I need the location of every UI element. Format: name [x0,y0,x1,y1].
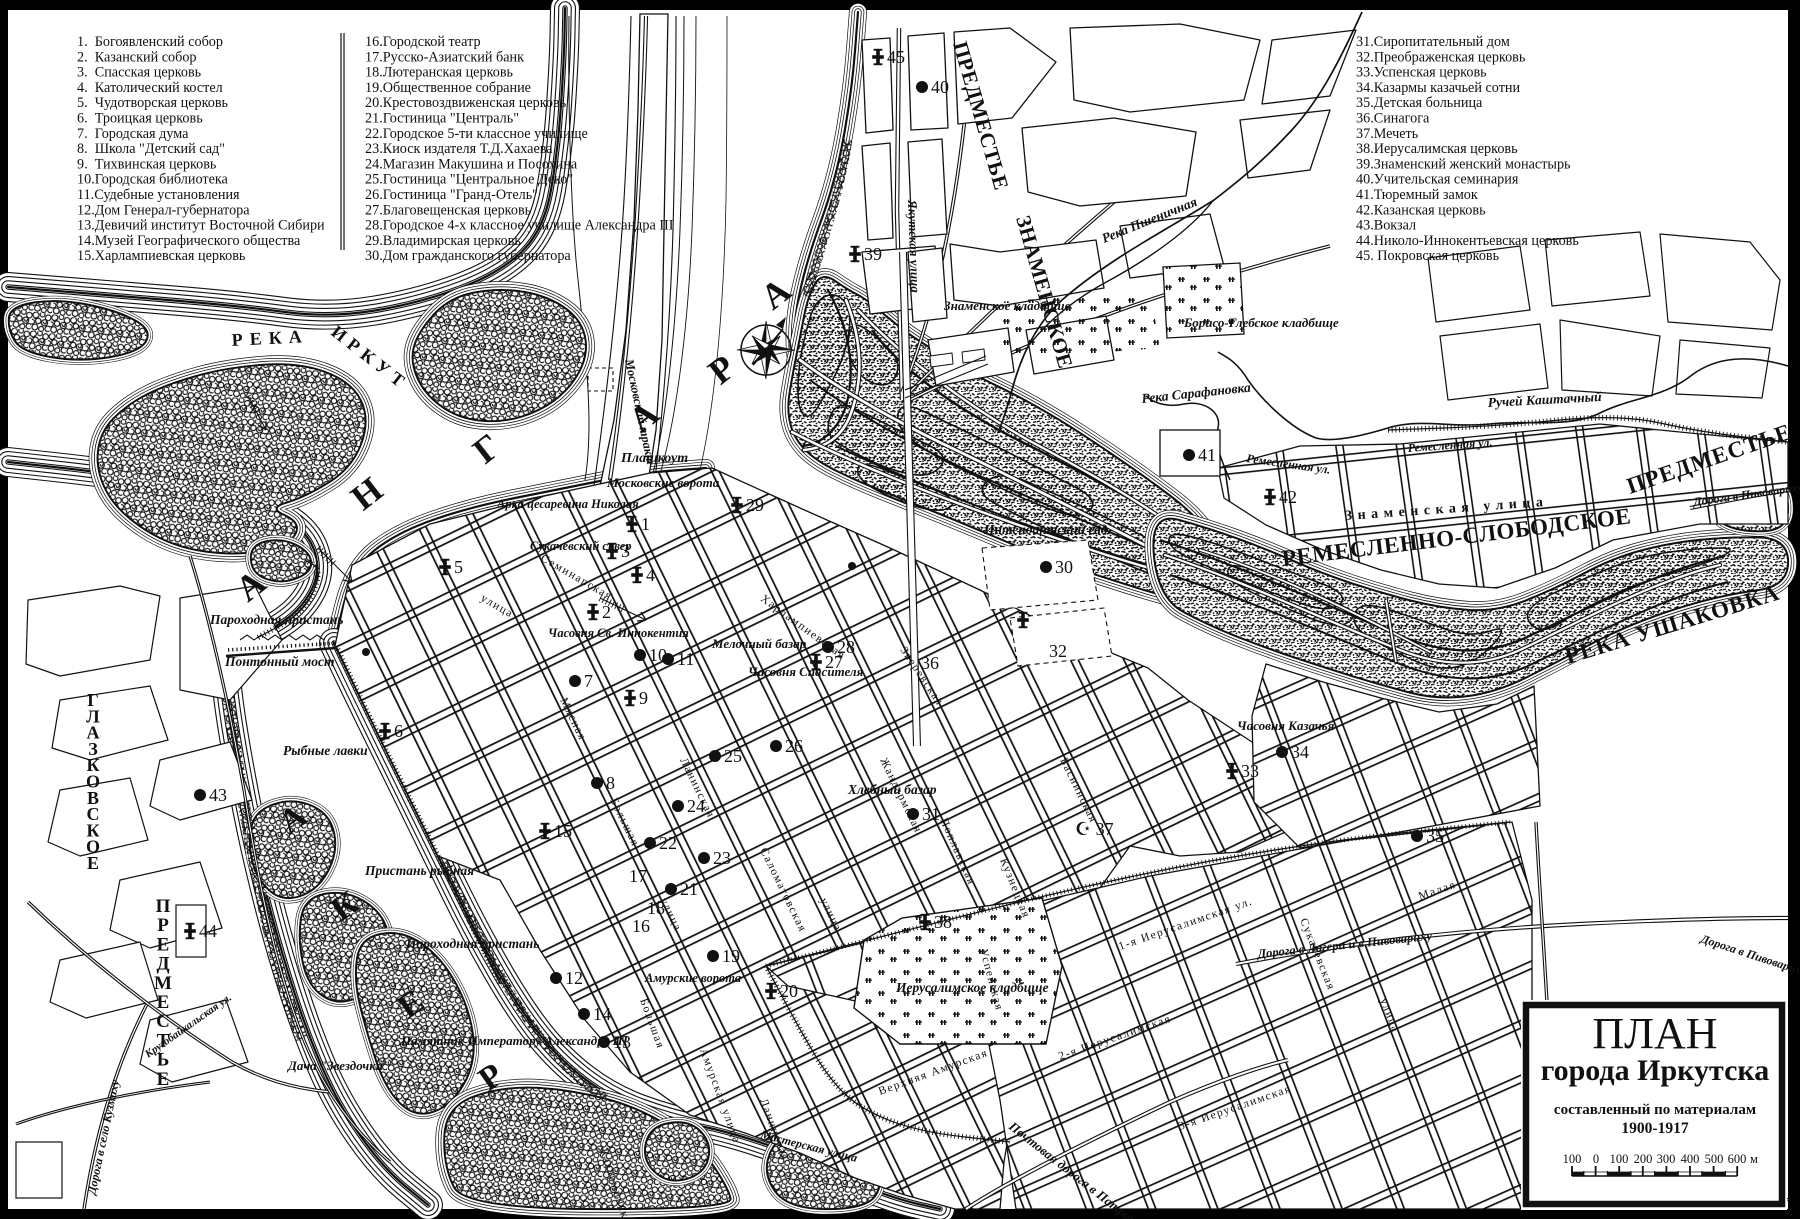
svg-text:500: 500 [1705,1152,1724,1166]
svg-text:Е: Е [157,992,170,1013]
svg-text:8: 8 [606,773,615,793]
svg-text:400: 400 [1681,1152,1700,1166]
svg-text:Часовня Св. Иннокентия: Часовня Св. Иннокентия [548,626,689,640]
svg-text:44: 44 [199,921,217,941]
svg-text:3: 3 [621,541,630,561]
svg-text:ПЛАН: ПЛАН [1592,1009,1717,1058]
svg-text:П: П [156,896,171,917]
svg-text:Амурские ворота: Амурские ворота [644,971,741,985]
svg-text:Дача "Звездочки": Дача "Звездочки" [287,1058,390,1073]
svg-text:города Иркутска: города Иркутска [1541,1054,1770,1087]
svg-text:17: 17 [629,866,647,886]
svg-text:м: м [1750,1152,1758,1166]
svg-text:26: 26 [785,736,803,756]
svg-text:Е: Е [87,853,99,873]
svg-text:16: 16 [632,916,650,936]
svg-text:43: 43 [209,785,227,805]
svg-text:36: 36 [921,653,939,673]
svg-text:М: М [154,973,172,994]
svg-text:31: 31 [922,804,940,824]
svg-text:Часовня Казачья: Часовня Казачья [1237,718,1335,733]
svg-text:Пароходная пристань: Пароходная пристань [209,612,343,627]
svg-text:35: 35 [1426,826,1444,846]
svg-text:200: 200 [1634,1152,1653,1166]
svg-text:Е: Е [157,934,170,955]
svg-text:Иерусалимское кладбище: Иерусалимское кладбище [895,980,1049,995]
svg-text:Памятник Императору Александру: Памятник Императору Александру III [400,1033,629,1048]
svg-text:32: 32 [1049,641,1067,661]
svg-text:Арка цесаревича Николая: Арка цесаревича Николая [496,497,639,511]
svg-text:Знаменское кладбище: Знаменское кладбище [943,298,1071,313]
svg-text:9: 9 [639,688,648,708]
svg-text:38: 38 [934,912,952,932]
svg-text:21: 21 [680,879,698,899]
svg-text:Рыбные лавки: Рыбные лавки [283,743,368,758]
svg-text:11: 11 [677,649,694,669]
svg-text:39: 39 [864,244,882,264]
svg-text:29: 29 [746,495,764,515]
svg-text:Борисо-Глебское кладбище: Борисо-Глебское кладбище [1183,315,1339,330]
svg-text:Д: Д [156,954,169,975]
svg-text:600: 600 [1728,1152,1747,1166]
svg-text:41: 41 [1198,445,1216,465]
svg-text:45: 45 [887,47,905,67]
svg-text:13: 13 [613,1032,631,1052]
svg-text:34: 34 [1291,742,1309,762]
svg-text:28: 28 [837,637,855,657]
svg-text:Мелочный базар: Мелочный базар [711,636,807,651]
svg-text:С: С [156,1011,170,1032]
svg-text:40: 40 [931,77,949,97]
svg-text:Р: Р [157,915,169,936]
svg-text:Е: Е [157,1069,170,1090]
svg-text:Пристань рыбная: Пристань рыбная [364,863,474,878]
svg-text:1900-1917: 1900-1917 [1621,1120,1688,1137]
svg-text:33: 33 [1241,761,1259,781]
svg-text:18: 18 [647,898,665,918]
svg-text:15: 15 [554,821,572,841]
svg-text:0: 0 [1593,1152,1599,1166]
svg-text:12: 12 [565,968,583,988]
svg-text:2: 2 [602,602,611,622]
svg-text:Московские ворота: Московские ворота [606,475,720,490]
svg-text:РЕКА: РЕКА [231,326,309,350]
svg-text:22: 22 [659,833,677,853]
svg-text:30: 30 [1055,557,1073,577]
svg-text:20: 20 [780,981,798,1001]
svg-text:23: 23 [713,848,731,868]
svg-text:4: 4 [646,565,655,585]
svg-text:Часовня Спасителя: Часовня Спасителя [748,664,864,679]
svg-text:14: 14 [593,1004,611,1024]
svg-text:1: 1 [641,514,650,534]
svg-text:100: 100 [1563,1152,1582,1166]
svg-text:42: 42 [1279,487,1297,507]
svg-text:19: 19 [722,946,740,966]
svg-text:Понтонный мост: Понтонный мост [224,654,335,669]
svg-text:300: 300 [1657,1152,1676,1166]
svg-text:24: 24 [687,796,705,816]
svg-text:6: 6 [394,721,403,741]
svg-text:Интендантский сад: Интендантский сад [983,522,1108,537]
svg-text:25: 25 [724,746,742,766]
svg-text:☪ 37: ☪ 37 [1075,819,1114,839]
svg-text:7: 7 [584,671,593,691]
svg-text:составленный по материалам: составленный по материалам [1554,1102,1756,1118]
svg-text:5: 5 [454,557,463,577]
svg-text:Пароходная пристань: Пароходная пристань [405,936,539,951]
svg-text:100: 100 [1610,1152,1629,1166]
